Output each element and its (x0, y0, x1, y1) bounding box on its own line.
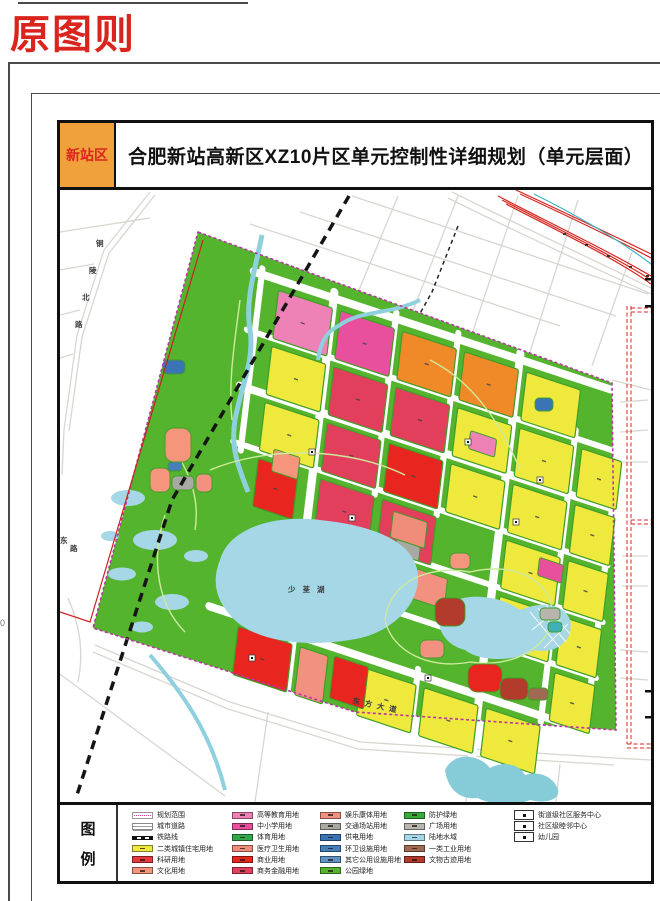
legend-entry: 文化用地 (132, 867, 228, 875)
community-marker-dot (515, 521, 517, 523)
legend-entry: 商务金融用地 (232, 867, 316, 875)
legend-entry: 文物古迹用地 (404, 856, 510, 864)
legend-column: 防护绿地广场用地陆地水域一类工业用地文物古迹用地 (404, 811, 510, 879)
title-bar: 新站区 合肥新站高新区XZ10片区单元控制性详细规划（单元层面） (60, 123, 651, 190)
road-label-char: 铜 (96, 238, 104, 248)
legend-entry-label: 陆地水域 (429, 832, 457, 842)
legend-entry: 防护绿地 (404, 811, 510, 819)
legend-entry: 一类工业用地 (404, 845, 510, 853)
legend-items: 规划范围城市道路铁路线二类城镇住宅用地科研用地文化用地高等教育用地中小学用地体育… (118, 805, 651, 881)
map-area: 少荃湖 东方大道 铜陵北路 东路 (60, 190, 651, 802)
edu_hi-swatch (232, 812, 253, 819)
legend-entry: 科研用地 (132, 856, 228, 864)
community-marker-dot (539, 479, 541, 481)
park-parcel (435, 598, 465, 626)
legend-entry-label: 中小学用地 (257, 821, 292, 831)
plan-sheet: 新站区 合肥新站高新区XZ10片区单元控制性详细规划（单元层面） (57, 120, 654, 884)
legend-entry-label: 交通场站用地 (345, 821, 387, 831)
legend-column: 街道级社区服务中心社区级睦邻中心幼儿园 (514, 811, 634, 879)
legend-entry: 娱乐康体用地 (320, 811, 400, 819)
railway-swatch (132, 836, 153, 840)
finance-swatch (232, 867, 253, 874)
water-swatch (404, 834, 425, 841)
legend-entry: 陆地水域 (404, 833, 510, 841)
road-label-char: 陵 (89, 265, 97, 275)
legend-entry-label: 医疗卫生用地 (257, 844, 299, 854)
legend-entry: 高等教育用地 (232, 811, 316, 819)
park-swatch (320, 867, 341, 874)
road-label-char: 北 (82, 292, 90, 302)
boundary-swatch (132, 812, 153, 819)
legend-entry-label: 公园绿地 (345, 866, 373, 876)
park-parcel (468, 664, 502, 692)
plan-title: 合肥新站高新区XZ10片区单元控制性详细规划（单元层面） (116, 123, 651, 187)
park-parcel (168, 462, 182, 471)
legend-entry: 街道级社区服务中心 (514, 811, 634, 819)
park-parcel (420, 640, 444, 658)
park-parcel (450, 553, 470, 569)
planning-document-page: { "page": { "corner_label": "原图则", "side… (0, 0, 660, 901)
legend-entry: 环卫设施用地 (320, 845, 400, 853)
park-parcel (528, 688, 548, 700)
square-swatch (404, 823, 425, 830)
parcel (294, 647, 328, 704)
legend-char-2: 例 (80, 848, 95, 869)
protect-swatch (404, 812, 425, 819)
road-swatch (132, 823, 153, 830)
legend-entry: 医疗卫生用地 (232, 845, 316, 853)
research-swatch (132, 856, 153, 863)
culture-swatch (132, 867, 153, 874)
road-label-char: 路 (70, 543, 78, 553)
legend-entry-label: 文物古迹用地 (429, 855, 471, 865)
school-swatch (232, 823, 253, 830)
district-tag: 新站区 (60, 123, 116, 187)
legend-entry: 其它公用设施用地 (320, 856, 400, 864)
legend-entry-label: 防护绿地 (429, 810, 457, 820)
legend-entry: 中小学用地 (232, 822, 316, 830)
community-marker-dot (251, 657, 253, 659)
legend-entry-label: 体育用地 (257, 832, 285, 842)
legend-entry-label: 高等教育用地 (257, 810, 299, 820)
community-marker-dot (427, 677, 429, 679)
utility-swatch (320, 856, 341, 863)
legend-entry-label: 社区级睦邻中心 (538, 821, 587, 831)
legend-column: 娱乐康体用地交通场站用地供电用地环卫设施用地其它公用设施用地公园绿地 (320, 811, 400, 879)
marker-swatch (514, 821, 534, 831)
outer-frame-horizontal (8, 62, 660, 64)
legend-entry: 铁路线 (132, 833, 228, 841)
edge-tick-label: 0 (0, 618, 5, 628)
legend-entry-label: 其它公用设施用地 (345, 855, 401, 865)
legend-entry: 城市道路 (132, 822, 228, 830)
legend-panel: 图 例 规划范围城市道路铁路线二类城镇住宅用地科研用地文化用地高等教育用地中小学… (60, 802, 651, 881)
leisure-swatch (320, 812, 341, 819)
legend-char-1: 图 (80, 818, 95, 839)
inner-frame-vertical (31, 93, 32, 901)
land-use-map: 少荃湖 东方大道 铜陵北路 东路 (60, 190, 651, 802)
legend-entry-label: 幼儿园 (538, 832, 559, 842)
marker-swatch (514, 810, 534, 820)
legend-title: 图 例 (60, 805, 118, 881)
legend-entry: 二类城镇住宅用地 (132, 845, 228, 853)
legend-entry-label: 科研用地 (157, 855, 185, 865)
legend-column: 高等教育用地中小学用地体育用地医疗卫生用地商业用地商务金融用地 (232, 811, 316, 879)
lake (216, 519, 418, 643)
legend-entry: 商业用地 (232, 856, 316, 864)
legend-entry: 幼儿园 (514, 833, 634, 841)
park-parcel (540, 608, 560, 620)
legend-entry-label: 规划范围 (157, 810, 185, 820)
park-parcel (500, 678, 528, 700)
industry-swatch (404, 845, 425, 852)
page-caption: 原图则 (10, 2, 136, 60)
resident-swatch (132, 845, 153, 852)
community-marker-dot (467, 441, 469, 443)
park-parcel (548, 622, 562, 632)
legend-entry-label: 商业用地 (257, 855, 285, 865)
outer-frame-vertical (8, 62, 10, 901)
legend-entry-label: 铁路线 (157, 832, 178, 842)
legend-entry-label: 二类城镇住宅用地 (157, 844, 213, 854)
legend-entry: 体育用地 (232, 833, 316, 841)
community-marker-dot (311, 451, 313, 453)
medical-swatch (232, 845, 253, 852)
relic-swatch (404, 856, 425, 863)
legend-entry-label: 广场用地 (429, 821, 457, 831)
road-label-char: 路 (75, 319, 83, 329)
road-label-char: 东 (60, 535, 68, 545)
power-swatch (320, 834, 341, 841)
legend-entry-label: 街道级社区服务中心 (538, 810, 601, 820)
legend-entry-label: 供电用地 (345, 832, 373, 842)
top-edge-line (18, 2, 248, 4)
park-parcel (196, 474, 212, 492)
legend-entry: 公园绿地 (320, 867, 400, 875)
legend-entry-label: 娱乐康体用地 (345, 810, 387, 820)
park-parcel (165, 428, 191, 462)
sport-swatch (232, 834, 253, 841)
commerce-swatch (232, 856, 253, 863)
legend-column: 规划范围城市道路铁路线二类城镇住宅用地科研用地文化用地 (132, 811, 228, 879)
marker-swatch (514, 832, 534, 842)
legend-entry-label: 环卫设施用地 (345, 844, 387, 854)
legend-entry-label: 商务金融用地 (257, 866, 299, 876)
legend-entry-label: 文化用地 (157, 866, 185, 876)
legend-entry-label: 一类工业用地 (429, 844, 471, 854)
legend-entry: 交通场站用地 (320, 822, 400, 830)
community-marker-dot (351, 517, 353, 519)
park-parcel (535, 398, 553, 411)
legend-entry: 供电用地 (320, 833, 400, 841)
station-swatch (320, 823, 341, 830)
inner-frame-horizontal (31, 93, 660, 94)
park-parcel (150, 468, 170, 492)
legend-entry: 规划范围 (132, 811, 228, 819)
legend-entry: 社区级睦邻中心 (514, 822, 634, 830)
legend-entry-label: 城市道路 (157, 821, 185, 831)
legend-entry: 广场用地 (404, 822, 510, 830)
sanitation-swatch (320, 845, 341, 852)
lake-label: 少荃湖 (287, 584, 332, 594)
